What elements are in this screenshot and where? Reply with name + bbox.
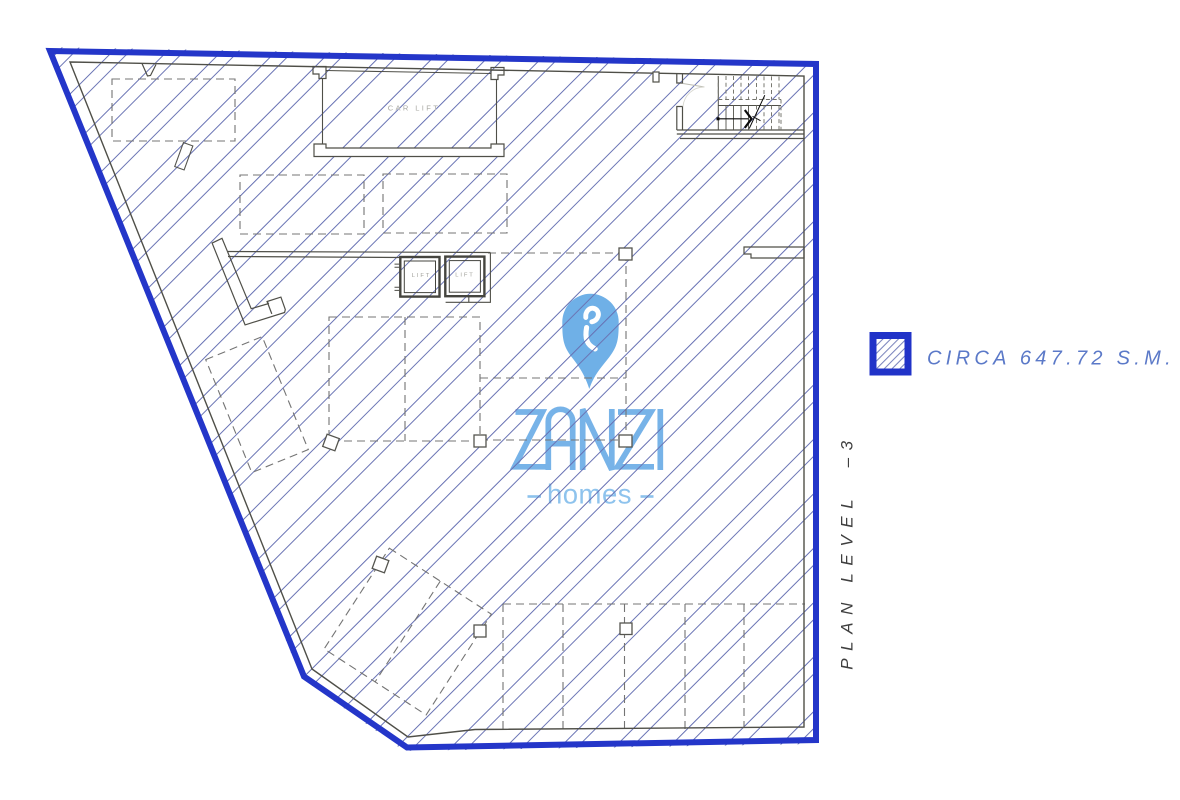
- svg-text:LIFT: LIFT: [412, 273, 432, 279]
- svg-text:CAR LIFT: CAR LIFT: [388, 104, 441, 113]
- svg-text:LIFT: LIFT: [455, 272, 475, 278]
- svg-text:CIRCA 647.72 S.M.: CIRCA 647.72 S.M.: [927, 348, 1175, 370]
- svg-text:PLAN LEVEL –3: PLAN LEVEL –3: [838, 433, 857, 670]
